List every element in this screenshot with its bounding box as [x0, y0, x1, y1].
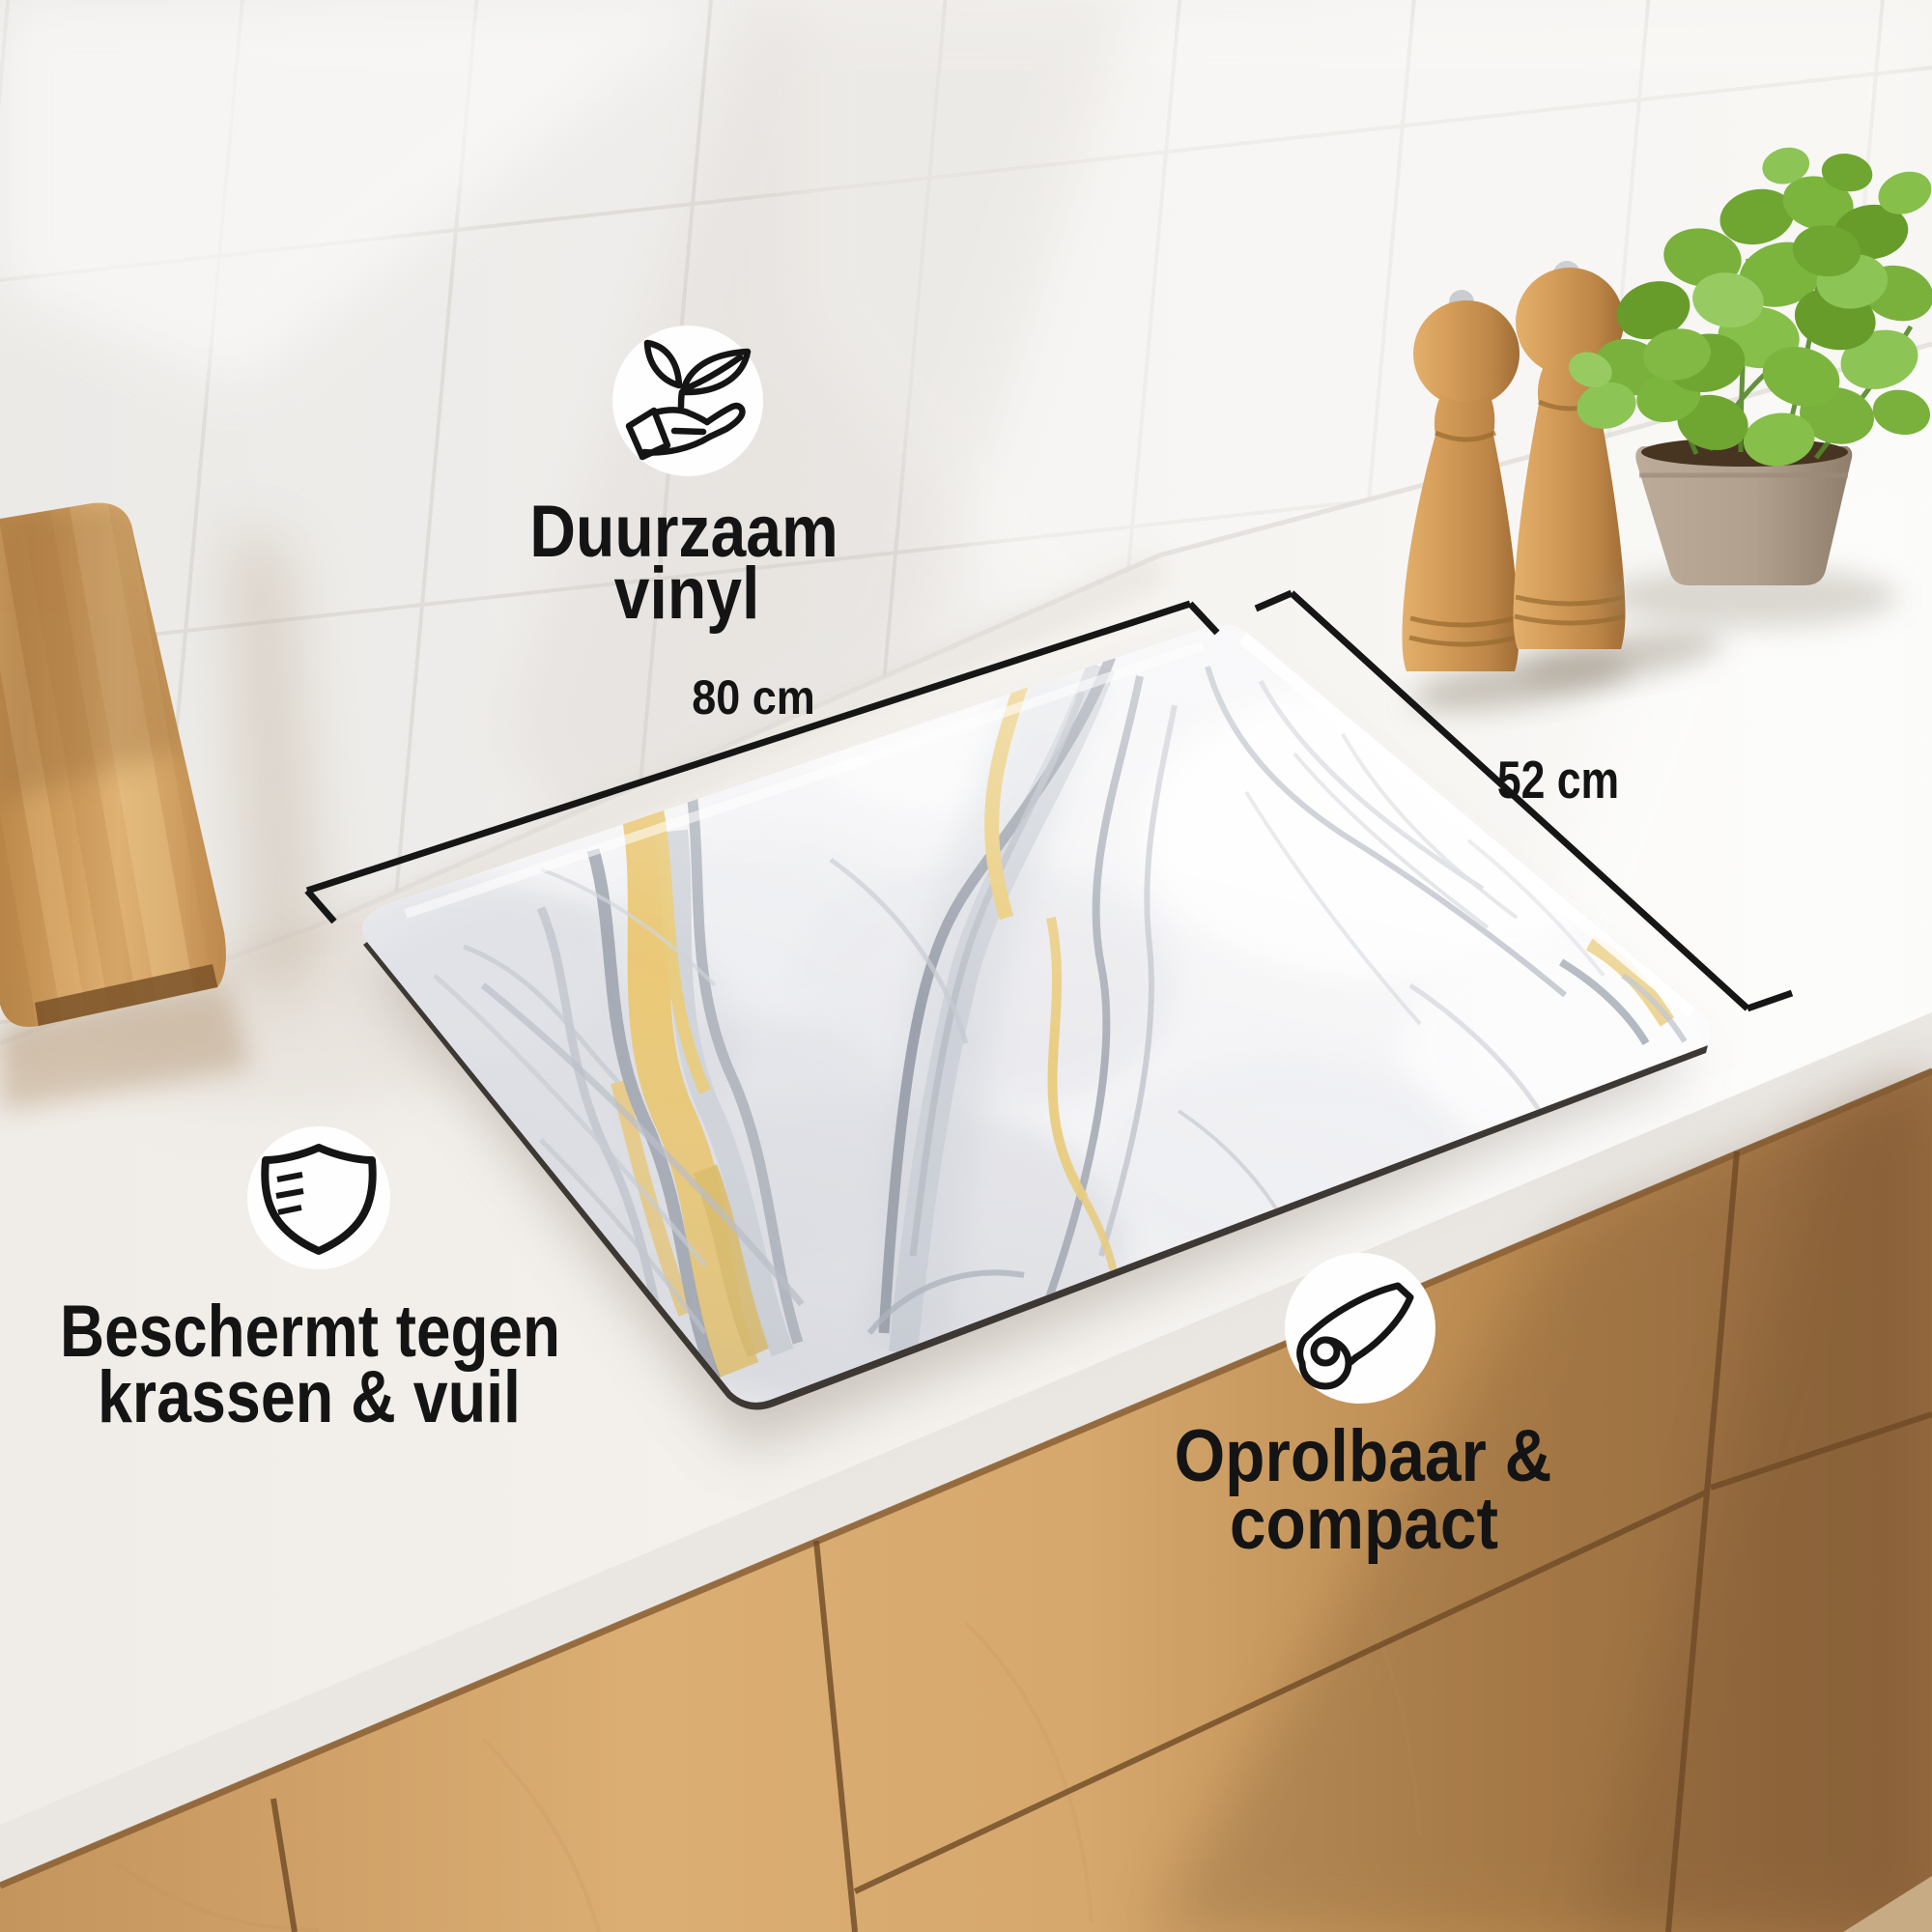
- svg-text:compact: compact: [1230, 1483, 1498, 1565]
- svg-text:krassen & vuil: krassen & vuil: [98, 1355, 521, 1437]
- svg-text:vinyl: vinyl: [614, 554, 760, 635]
- svg-text:52 cm: 52 cm: [1497, 751, 1619, 810]
- svg-text:80 cm: 80 cm: [692, 671, 815, 725]
